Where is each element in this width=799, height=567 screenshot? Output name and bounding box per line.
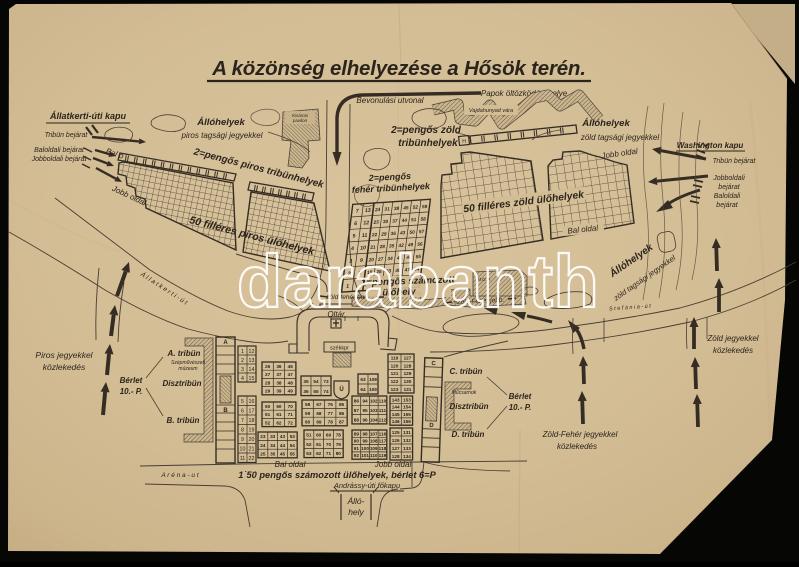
svg-text:36: 36 bbox=[303, 389, 309, 394]
svg-text:72: 72 bbox=[288, 420, 294, 425]
svg-text:Műcsarnok: Műcsarnok bbox=[452, 390, 477, 396]
svg-text:Jobboldali bejárat: Jobboldali bejárat bbox=[31, 156, 88, 163]
svg-text:134: 134 bbox=[403, 454, 411, 459]
svg-text:B: B bbox=[223, 408, 228, 414]
svg-text:37: 37 bbox=[276, 372, 282, 377]
svg-text:127: 127 bbox=[392, 446, 400, 451]
svg-text:109: 109 bbox=[369, 387, 377, 392]
svg-text:118: 118 bbox=[379, 446, 387, 451]
svg-text:85: 85 bbox=[339, 402, 345, 407]
svg-text:Bérlet: Bérlet bbox=[120, 376, 143, 385]
svg-text:108: 108 bbox=[370, 439, 378, 444]
svg-text:17: 17 bbox=[249, 409, 255, 415]
svg-text:29: 29 bbox=[265, 389, 271, 394]
svg-text:10.- P.: 10.- P. bbox=[120, 387, 143, 396]
svg-text:156: 156 bbox=[403, 419, 411, 424]
svg-text:62: 62 bbox=[276, 420, 282, 425]
svg-text:46: 46 bbox=[288, 364, 294, 369]
svg-text:145: 145 bbox=[392, 412, 400, 417]
svg-text:26: 26 bbox=[265, 364, 271, 369]
svg-text:Állóhelyek: Állóhelyek bbox=[196, 117, 245, 128]
svg-text:51: 51 bbox=[265, 412, 271, 417]
svg-text:1˙50 pengős számozott ülőhelye: 1˙50 pengős számozott ülőhelyek, bérlet … bbox=[238, 470, 436, 480]
svg-text:91: 91 bbox=[354, 446, 360, 451]
svg-text:Jobboldali: Jobboldali bbox=[712, 175, 745, 182]
svg-text:131: 131 bbox=[404, 387, 412, 392]
svg-text:Jobb oldal: Jobb oldal bbox=[374, 460, 412, 469]
svg-text:110: 110 bbox=[379, 399, 387, 404]
svg-text:11: 11 bbox=[361, 233, 367, 239]
svg-text:Zöld-Fehér jegyekkel: Zöld-Fehér jegyekkel bbox=[542, 430, 618, 439]
svg-text:Piros jegyekkel: Piros jegyekkel bbox=[35, 350, 93, 360]
svg-text:63: 63 bbox=[360, 377, 366, 382]
svg-text:71: 71 bbox=[326, 451, 332, 456]
svg-text:133: 133 bbox=[403, 446, 411, 451]
svg-text:közlekedés: közlekedés bbox=[557, 442, 597, 451]
svg-text:103: 103 bbox=[370, 408, 378, 413]
svg-text:16: 16 bbox=[249, 399, 255, 405]
svg-text:122: 122 bbox=[391, 379, 399, 384]
svg-text:116: 116 bbox=[379, 431, 387, 436]
svg-text:13: 13 bbox=[364, 208, 371, 214]
svg-text:36: 36 bbox=[276, 364, 282, 369]
svg-text:54: 54 bbox=[290, 443, 296, 448]
svg-text:98: 98 bbox=[362, 431, 368, 436]
svg-text:154: 154 bbox=[403, 405, 411, 410]
svg-text:60: 60 bbox=[276, 404, 282, 409]
svg-text:90: 90 bbox=[354, 439, 360, 444]
svg-text:131: 131 bbox=[403, 430, 411, 435]
svg-text:144: 144 bbox=[392, 405, 400, 410]
svg-text:bejárat: bejárat bbox=[716, 202, 738, 209]
svg-text:61: 61 bbox=[276, 412, 282, 417]
svg-text:43: 43 bbox=[280, 434, 286, 439]
svg-text:53: 53 bbox=[290, 434, 296, 439]
svg-text:Bérlet: Bérlet bbox=[509, 392, 532, 401]
svg-text:14: 14 bbox=[249, 367, 255, 373]
svg-text:108: 108 bbox=[369, 377, 377, 382]
svg-text:Vajdahunyad vára: Vajdahunyad vára bbox=[469, 108, 513, 114]
svg-text:zöld tagsági jegyekkel: zöld tagsági jegyekkel bbox=[580, 133, 659, 142]
svg-text:27: 27 bbox=[265, 372, 271, 377]
svg-text:111: 111 bbox=[379, 408, 387, 413]
svg-text:107: 107 bbox=[370, 431, 378, 436]
svg-text:89: 89 bbox=[354, 431, 360, 436]
svg-text:21: 21 bbox=[249, 447, 255, 453]
svg-text:28: 28 bbox=[265, 380, 271, 385]
svg-text:62: 62 bbox=[316, 451, 322, 456]
svg-text:101: 101 bbox=[361, 453, 369, 458]
svg-text:10: 10 bbox=[240, 447, 246, 453]
svg-text:H: H bbox=[462, 139, 466, 145]
svg-text:12: 12 bbox=[249, 349, 255, 355]
svg-text:123: 123 bbox=[391, 387, 399, 392]
svg-text:48: 48 bbox=[288, 380, 294, 385]
svg-text:7: 7 bbox=[241, 418, 244, 424]
svg-text:55: 55 bbox=[290, 451, 296, 456]
svg-text:76: 76 bbox=[328, 402, 334, 407]
svg-text:5: 5 bbox=[241, 399, 244, 405]
svg-text:44: 44 bbox=[280, 443, 286, 448]
svg-text:Tribün bejárat: Tribün bejárat bbox=[713, 158, 757, 165]
svg-text:közlekedés: közlekedés bbox=[43, 362, 86, 372]
svg-text:96: 96 bbox=[362, 417, 368, 422]
svg-text:35: 35 bbox=[270, 451, 276, 456]
svg-text:B. tribün: B. tribün bbox=[167, 416, 200, 425]
svg-text:18: 18 bbox=[249, 418, 255, 424]
svg-text:68: 68 bbox=[316, 411, 322, 416]
svg-text:Tribün bejárat: Tribün bejárat bbox=[45, 132, 89, 139]
svg-text:6: 6 bbox=[241, 409, 244, 415]
svg-text:74: 74 bbox=[323, 389, 329, 394]
svg-text:pavilon: pavilon bbox=[292, 118, 308, 123]
svg-text:34: 34 bbox=[270, 443, 276, 448]
svg-text:39: 39 bbox=[276, 389, 282, 394]
svg-text:143: 143 bbox=[392, 397, 400, 402]
svg-text:52: 52 bbox=[306, 442, 312, 447]
svg-text:88: 88 bbox=[354, 417, 360, 422]
svg-text:2=pengős zöld: 2=pengős zöld bbox=[390, 125, 462, 136]
svg-text:Bevonulási utvonal: Bevonulási utvonal bbox=[356, 96, 423, 105]
svg-text:59: 59 bbox=[305, 411, 311, 416]
svg-text:125: 125 bbox=[392, 430, 400, 435]
svg-text:104: 104 bbox=[370, 417, 378, 422]
svg-text:60: 60 bbox=[305, 419, 311, 424]
svg-text:64: 64 bbox=[360, 387, 366, 392]
svg-text:tribünhelyek: tribünhelyek bbox=[398, 138, 458, 149]
svg-text:darabanth: darabanth bbox=[237, 240, 599, 323]
svg-text:102: 102 bbox=[370, 399, 378, 404]
svg-text:73: 73 bbox=[323, 379, 329, 384]
svg-text:49: 49 bbox=[288, 389, 294, 394]
svg-text:155: 155 bbox=[403, 412, 411, 417]
svg-text:129: 129 bbox=[404, 371, 412, 376]
svg-text:piros tagsági jegyekkel: piros tagsági jegyekkel bbox=[181, 131, 263, 140]
svg-text:bejárat: bejárat bbox=[718, 184, 740, 191]
svg-text:127: 127 bbox=[404, 356, 412, 361]
svg-text:117: 117 bbox=[379, 439, 387, 444]
svg-text:9: 9 bbox=[241, 437, 244, 443]
svg-text:130: 130 bbox=[404, 379, 412, 384]
svg-text:86: 86 bbox=[354, 399, 360, 404]
svg-text:Állóhelyek: Állóhelyek bbox=[581, 118, 630, 129]
svg-text:70: 70 bbox=[326, 442, 332, 447]
svg-text:Baloldali bejárat: Baloldali bejárat bbox=[34, 147, 85, 154]
svg-text:132: 132 bbox=[403, 438, 411, 443]
svg-text:128: 128 bbox=[392, 454, 400, 459]
svg-text:87: 87 bbox=[339, 419, 345, 424]
svg-text:67: 67 bbox=[316, 402, 322, 407]
svg-text:Baloldali: Baloldali bbox=[714, 193, 741, 200]
svg-text:Ü: Ü bbox=[339, 386, 343, 393]
svg-text:126: 126 bbox=[392, 438, 400, 443]
svg-text:69: 69 bbox=[316, 419, 322, 424]
svg-text:47: 47 bbox=[288, 372, 294, 377]
svg-text:13: 13 bbox=[249, 358, 255, 364]
svg-text:Andrássy-úti főkapu: Andrássy-úti főkapu bbox=[333, 481, 401, 490]
svg-text:119: 119 bbox=[391, 356, 399, 361]
svg-text:Álló-: Álló- bbox=[346, 496, 364, 506]
svg-text:79: 79 bbox=[336, 442, 342, 447]
svg-text:33: 33 bbox=[270, 434, 276, 439]
svg-text:50: 50 bbox=[265, 404, 271, 409]
svg-text:35: 35 bbox=[303, 379, 309, 384]
svg-text:A közönség elhelyezése a Hősök: A közönség elhelyezése a Hősök terén. bbox=[211, 57, 586, 80]
svg-text:51: 51 bbox=[306, 433, 312, 438]
svg-text:A: A bbox=[223, 340, 228, 346]
svg-text:112: 112 bbox=[379, 417, 387, 422]
svg-text:55: 55 bbox=[313, 389, 319, 394]
svg-text:80: 80 bbox=[336, 451, 342, 456]
svg-text:45: 45 bbox=[280, 451, 286, 456]
svg-text:78: 78 bbox=[328, 419, 334, 424]
svg-text:4: 4 bbox=[241, 376, 244, 382]
svg-text:128: 128 bbox=[404, 363, 412, 368]
svg-text:Bal oldal: Bal oldal bbox=[275, 460, 306, 469]
svg-text:60: 60 bbox=[316, 433, 322, 438]
svg-text:múzeum: múzeum bbox=[178, 366, 197, 372]
svg-text:94: 94 bbox=[362, 399, 368, 404]
svg-text:közlekedés: közlekedés bbox=[713, 346, 753, 355]
svg-text:77: 77 bbox=[328, 411, 334, 416]
svg-text:78: 78 bbox=[336, 433, 342, 438]
svg-text:109: 109 bbox=[370, 446, 378, 451]
svg-text:15: 15 bbox=[249, 376, 255, 382]
svg-text:8: 8 bbox=[241, 428, 244, 434]
svg-text:100: 100 bbox=[361, 446, 369, 451]
svg-text:69: 69 bbox=[326, 433, 332, 438]
svg-text:99: 99 bbox=[362, 439, 368, 444]
svg-text:12: 12 bbox=[363, 220, 370, 226]
svg-text:71: 71 bbox=[288, 412, 294, 417]
svg-text:153: 153 bbox=[403, 397, 411, 402]
svg-text:119: 119 bbox=[379, 453, 387, 458]
svg-text:92: 92 bbox=[354, 453, 360, 458]
svg-text:C. tribün: C. tribün bbox=[450, 367, 483, 376]
svg-text:87: 87 bbox=[354, 408, 360, 413]
svg-text:Disztribün: Disztribün bbox=[449, 402, 488, 411]
svg-text:52: 52 bbox=[265, 420, 271, 425]
svg-text:120: 120 bbox=[391, 363, 399, 368]
svg-text:58: 58 bbox=[305, 402, 311, 407]
svg-text:61: 61 bbox=[316, 442, 322, 447]
svg-text:hely: hely bbox=[348, 507, 364, 517]
svg-text:23: 23 bbox=[260, 434, 266, 439]
svg-text:95: 95 bbox=[362, 408, 368, 413]
svg-text:10.- P.: 10.- P. bbox=[509, 403, 532, 412]
svg-text:1: 1 bbox=[241, 349, 244, 355]
svg-text:19: 19 bbox=[249, 428, 255, 434]
svg-text:70: 70 bbox=[288, 404, 294, 409]
svg-text:54: 54 bbox=[313, 379, 319, 384]
svg-text:146: 146 bbox=[392, 419, 400, 424]
svg-text:Disztribün: Disztribün bbox=[162, 379, 201, 388]
svg-text:Washington kapu: Washington kapu bbox=[677, 141, 744, 150]
svg-text:20: 20 bbox=[249, 437, 255, 443]
svg-text:38: 38 bbox=[276, 380, 282, 385]
svg-text:86: 86 bbox=[339, 411, 345, 416]
svg-text:121: 121 bbox=[391, 371, 399, 376]
svg-text:22: 22 bbox=[249, 456, 255, 462]
svg-text:Állatkerti-úti kapu: Állatkerti-úti kapu bbox=[49, 111, 127, 121]
svg-text:11: 11 bbox=[240, 456, 246, 462]
svg-text:53: 53 bbox=[306, 451, 312, 456]
svg-text:A r é n a - u t: A r é n a - u t bbox=[160, 472, 200, 479]
svg-text:székkpr: székkpr bbox=[330, 346, 349, 352]
svg-text:D. tribün: D. tribün bbox=[452, 430, 485, 439]
svg-text:110: 110 bbox=[370, 453, 378, 458]
svg-text:2: 2 bbox=[241, 358, 244, 364]
svg-text:3: 3 bbox=[241, 367, 244, 373]
svg-text:24: 24 bbox=[260, 443, 266, 448]
svg-text:25: 25 bbox=[260, 451, 266, 456]
svg-text:A. tribün: A. tribün bbox=[167, 349, 201, 358]
svg-text:Zöld jegyekkel: Zöld jegyekkel bbox=[706, 334, 758, 343]
